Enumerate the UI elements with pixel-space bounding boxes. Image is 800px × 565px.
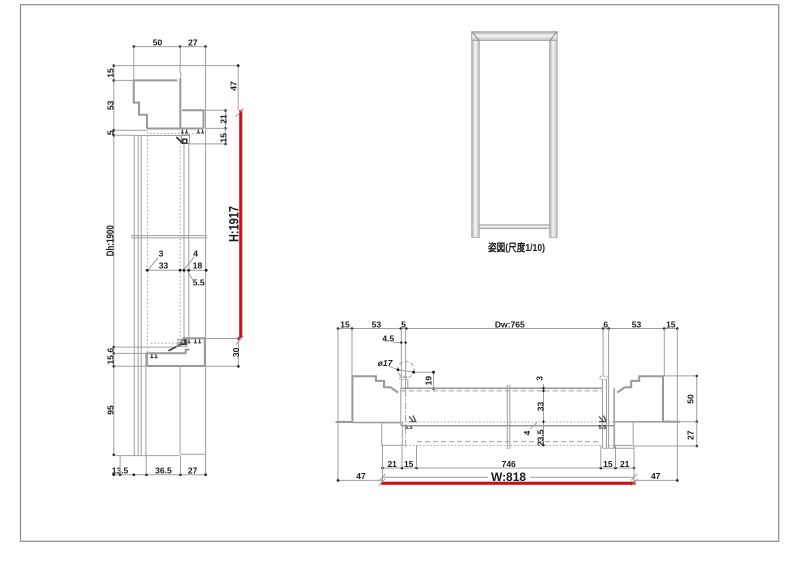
svg-text:Dh:1900: Dh:1900 [105,225,116,256]
svg-text:27: 27 [188,465,198,475]
svg-text:15: 15 [666,319,676,329]
svg-text:27: 27 [685,430,695,440]
svg-text:30: 30 [231,347,241,357]
svg-text:4: 4 [522,430,532,435]
svg-text:6: 6 [603,319,608,329]
svg-text:53: 53 [632,319,642,329]
svg-text:47: 47 [229,81,239,91]
svg-text:95: 95 [106,405,116,415]
svg-text:5: 5 [106,130,116,135]
svg-text:H:1917: H:1917 [225,206,241,242]
svg-text:18: 18 [193,261,203,271]
svg-text:21: 21 [620,459,630,469]
svg-text:5.5: 5.5 [599,425,607,431]
svg-text:47: 47 [651,471,661,481]
svg-text:姿図(尺度1/10): 姿図(尺度1/10) [488,241,545,254]
svg-text:3: 3 [159,248,164,258]
svg-text:27: 27 [188,37,198,47]
svg-text:50: 50 [685,394,695,404]
svg-text:47: 47 [356,471,366,481]
svg-text:19: 19 [424,376,434,386]
svg-text:21: 21 [218,114,228,124]
svg-text:ø17: ø17 [378,358,394,368]
svg-text:33: 33 [536,402,546,412]
svg-text:53: 53 [106,100,116,110]
svg-text:Dw:765: Dw:765 [495,319,525,329]
svg-text:33: 33 [159,261,169,271]
svg-text:15: 15 [340,319,350,329]
svg-text:5.5: 5.5 [193,278,205,288]
svg-text:5: 5 [401,319,406,329]
svg-text:21: 21 [387,459,397,469]
svg-text:15: 15 [106,68,116,78]
svg-text:15: 15 [218,133,228,143]
svg-text:15: 15 [603,459,613,469]
svg-text:4: 4 [193,248,198,258]
svg-text:4.5: 4.5 [382,333,394,343]
svg-text:15: 15 [106,355,116,365]
svg-text:23.5: 23.5 [535,429,545,446]
svg-text:746: 746 [502,459,516,469]
svg-text:50: 50 [153,37,163,47]
svg-text:6: 6 [106,348,116,353]
svg-text:15: 15 [404,459,414,469]
svg-text:36.5: 36.5 [155,465,172,475]
svg-text:53: 53 [372,319,382,329]
svg-text:3: 3 [535,376,545,381]
